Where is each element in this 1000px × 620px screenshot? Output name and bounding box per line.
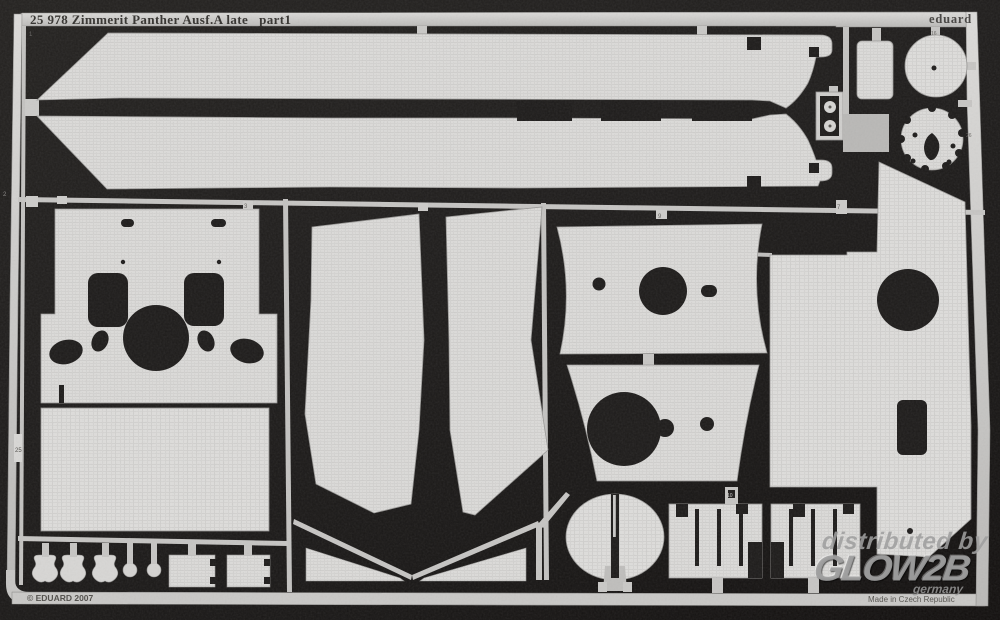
- svg-text:26: 26: [966, 133, 972, 139]
- svg-text:25: 25: [15, 448, 22, 454]
- svg-text:16: 16: [931, 31, 937, 37]
- svg-text:10: 10: [727, 493, 733, 499]
